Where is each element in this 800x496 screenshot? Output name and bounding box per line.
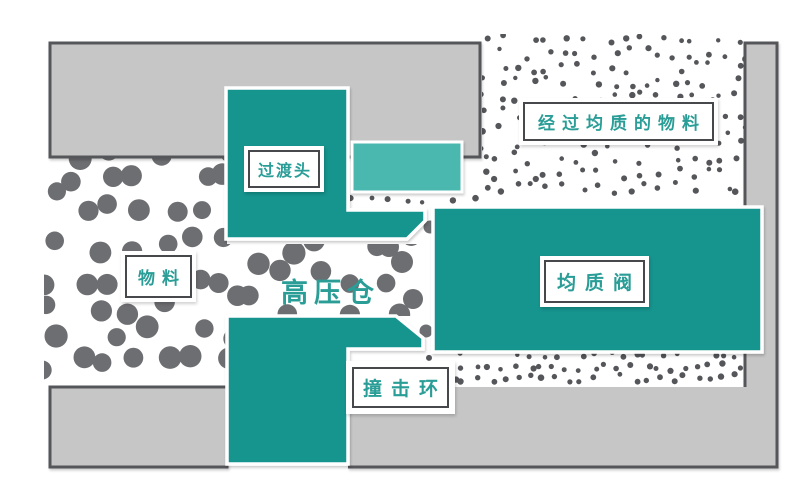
- lower-left-wall: [50, 387, 227, 467]
- particle-dot: [495, 123, 501, 129]
- particle-dot: [533, 37, 539, 43]
- particle-dot: [136, 315, 159, 338]
- particle-dot: [548, 49, 553, 54]
- particle-dot: [591, 71, 596, 76]
- particle-dot: [567, 379, 572, 384]
- particle-dot: [613, 159, 618, 164]
- particle-dot: [97, 274, 118, 295]
- particle-dot: [497, 47, 501, 51]
- particle-dot: [687, 39, 692, 44]
- particle-dot: [679, 69, 685, 75]
- particle-dot: [524, 56, 529, 61]
- diagram-canvas: [0, 0, 800, 496]
- particle-dot: [672, 378, 678, 384]
- particle-dot: [513, 363, 519, 369]
- particle-dot: [209, 273, 229, 293]
- particle-dot: [525, 161, 530, 166]
- particle-dot: [513, 169, 518, 174]
- particle-dot: [97, 194, 117, 214]
- particle-dot: [734, 155, 740, 161]
- particle-dot: [645, 45, 651, 51]
- particle-dot: [128, 199, 150, 221]
- particle-dot: [549, 364, 554, 369]
- particle-dot: [498, 367, 503, 372]
- particle-dot: [738, 63, 744, 69]
- homogenizer-diagram: 物料 过渡头 经过均质的物料 均质阀 撞击环 高压仓: [0, 0, 800, 496]
- particle-dot: [644, 378, 649, 383]
- particle-dot: [517, 375, 522, 380]
- particle-dot: [627, 45, 632, 50]
- particle-dot: [654, 366, 659, 371]
- particle-dot: [492, 156, 498, 162]
- particle-dot: [476, 365, 481, 370]
- particle-dot: [574, 160, 579, 165]
- particle-dot: [45, 324, 68, 347]
- particle-dot: [721, 353, 726, 358]
- particle-dot: [614, 84, 619, 89]
- particle-dot: [679, 38, 684, 43]
- particle-dot: [484, 154, 489, 159]
- particle-dot: [91, 300, 112, 321]
- homogenizing-valve-label-text: 均质阀: [544, 260, 645, 303]
- particle-dot: [481, 108, 487, 114]
- particle-dot: [706, 160, 712, 166]
- particle-dot: [403, 289, 423, 309]
- particle-dot: [645, 83, 650, 88]
- particle-dot: [705, 60, 710, 65]
- particle-dot: [679, 372, 685, 378]
- particle-dot: [692, 174, 698, 180]
- particle-dot: [515, 65, 521, 71]
- particle-dot: [247, 253, 269, 275]
- particle-dot: [692, 156, 698, 162]
- particle-dot: [121, 165, 142, 186]
- particle-dot: [655, 185, 661, 191]
- particle-dot: [576, 379, 581, 384]
- particle-dot: [612, 191, 617, 196]
- particle-dot: [596, 81, 602, 87]
- particle-dot: [528, 181, 533, 186]
- particle-dot: [580, 168, 585, 173]
- particle-dot: [716, 158, 722, 164]
- particle-dot: [385, 196, 391, 202]
- particle-dot: [623, 35, 629, 41]
- particle-dot: [655, 78, 659, 82]
- particle-dot: [74, 346, 96, 368]
- particle-dot: [618, 372, 623, 377]
- particle-dot: [728, 187, 733, 192]
- particle-dot: [627, 362, 633, 368]
- particle-dot: [581, 354, 587, 360]
- particle-dot: [500, 96, 506, 102]
- particle-dot: [450, 197, 456, 203]
- particle-dot: [370, 196, 375, 201]
- particle-dot: [590, 374, 596, 380]
- particle-dot: [572, 51, 577, 56]
- material-label-text: 物料: [125, 255, 192, 298]
- particle-dot: [615, 50, 621, 56]
- particle-dot: [554, 354, 560, 360]
- particle-dot: [732, 188, 739, 195]
- particle-dot: [637, 173, 643, 179]
- particle-dot: [563, 50, 569, 56]
- particle-dot: [647, 363, 653, 369]
- particle-dot: [90, 242, 112, 264]
- particle-dot: [77, 274, 99, 296]
- particle-dot: [687, 55, 692, 60]
- particle-dot: [540, 37, 546, 43]
- material-label: 物料: [121, 251, 196, 302]
- particle-dot: [515, 145, 520, 150]
- particle-dot: [736, 75, 742, 81]
- particle-dot: [706, 52, 712, 58]
- particle-dot: [543, 355, 548, 360]
- particle-dot: [595, 182, 601, 188]
- impact-ring-label: 撞击环: [346, 361, 455, 414]
- particle-dot: [591, 55, 596, 60]
- particle-dot: [732, 371, 738, 377]
- particle-dot: [503, 376, 509, 382]
- particle-dot: [726, 131, 731, 136]
- particle-dot: [485, 185, 491, 191]
- particle-dot: [574, 61, 580, 67]
- particle-dot: [501, 80, 507, 86]
- homogenizing-valve-label: 均质阀: [540, 256, 649, 307]
- particle-dot: [621, 354, 627, 360]
- particle-dot: [559, 156, 564, 161]
- impact-ring-label-text: 撞击环: [352, 367, 449, 408]
- particle-dot: [738, 114, 744, 120]
- particle-dot: [673, 180, 678, 185]
- particle-dot: [182, 227, 203, 248]
- particle-dot: [723, 54, 728, 59]
- particle-dot: [704, 362, 710, 368]
- particle-dot: [557, 171, 563, 177]
- particle-dot: [624, 70, 629, 75]
- particle-dot: [426, 355, 432, 361]
- particle-dot: [732, 355, 737, 360]
- particle-dot: [695, 364, 700, 369]
- particle-dot: [34, 275, 55, 296]
- particle-dot: [719, 360, 725, 366]
- particle-dot: [420, 200, 424, 204]
- particle-dot: [580, 36, 585, 41]
- particle-dot: [693, 188, 699, 194]
- particle-dot: [697, 376, 702, 381]
- particle-dot: [511, 98, 517, 104]
- particle-dot: [716, 38, 720, 42]
- particle-dot: [512, 150, 518, 156]
- particle-dot: [689, 93, 694, 98]
- particle-dot: [699, 83, 705, 89]
- particle-dot: [528, 373, 533, 378]
- particle-dot: [108, 328, 126, 346]
- particle-dot: [592, 150, 598, 156]
- particle-dot: [609, 40, 615, 46]
- particle-dot: [123, 348, 143, 368]
- particle-dot: [560, 81, 566, 87]
- particle-dot: [613, 366, 619, 372]
- particle-dot: [676, 158, 681, 163]
- homogenized-material-label: 经过均质的物料: [519, 98, 718, 145]
- particle-dot: [673, 81, 679, 87]
- particle-dot: [531, 365, 537, 371]
- particle-dot: [564, 35, 570, 41]
- particle-dot: [484, 364, 490, 370]
- particle-dot: [594, 367, 599, 372]
- particle-dot: [559, 62, 564, 67]
- particle-dot: [458, 365, 463, 370]
- particle-dot: [527, 354, 532, 359]
- particle-dot: [723, 114, 728, 119]
- particle-dot: [193, 201, 211, 219]
- particle-dot: [621, 175, 627, 181]
- particle-dot: [559, 181, 564, 186]
- particle-dot: [653, 92, 659, 98]
- particle-dot: [583, 188, 588, 193]
- particle-dot: [552, 374, 557, 379]
- particle-dot: [738, 365, 743, 370]
- particle-dot: [593, 168, 598, 173]
- particle-dot: [513, 76, 517, 80]
- particle-dot: [707, 167, 712, 172]
- particle-dot: [683, 366, 688, 371]
- particle-dot: [117, 304, 138, 325]
- particle-dot: [538, 374, 545, 381]
- particle-dot: [540, 69, 546, 75]
- particle-dot: [655, 53, 660, 58]
- particle-dot: [576, 368, 581, 373]
- transition-head-label-text: 过渡头: [248, 150, 320, 188]
- particle-dot: [45, 232, 64, 251]
- particle-dot: [498, 188, 504, 194]
- particle-dot: [731, 90, 737, 96]
- particle-dot: [492, 379, 498, 385]
- particle-dot: [685, 80, 690, 85]
- particle-dot: [491, 176, 497, 182]
- particle-dot: [667, 368, 673, 374]
- particle-dot: [635, 379, 641, 385]
- particle-dot: [694, 60, 699, 65]
- particle-dot: [738, 40, 743, 45]
- particle-dot: [637, 90, 642, 95]
- particle-dot: [457, 378, 463, 384]
- particle-dot: [677, 166, 683, 172]
- particle-dot: [609, 65, 615, 71]
- particle-dot: [195, 319, 213, 337]
- particle-dot: [168, 202, 188, 222]
- particle-dot: [540, 172, 546, 178]
- particle-dot: [717, 167, 722, 172]
- particle-dot: [406, 199, 411, 204]
- particle-dot: [636, 161, 641, 166]
- particle-dot: [562, 367, 567, 372]
- particle-dot: [500, 32, 506, 38]
- particle-dot: [532, 78, 538, 84]
- particle-dot: [708, 376, 713, 381]
- particle-dot: [613, 92, 618, 97]
- particle-dot: [544, 75, 549, 80]
- particle-dot: [239, 286, 259, 306]
- particle-dot: [738, 138, 744, 144]
- particle-dot: [179, 345, 201, 367]
- particle-dot: [630, 84, 636, 90]
- particle-dot: [531, 70, 537, 76]
- particle-dot: [33, 361, 52, 380]
- particle-dot: [661, 35, 666, 40]
- particle-dot: [641, 181, 646, 186]
- particle-dot: [61, 172, 81, 192]
- particle-dot: [661, 353, 666, 358]
- particle-dot: [483, 169, 489, 175]
- particle-dot: [503, 66, 508, 71]
- particle-dot: [536, 364, 541, 369]
- particle-dot: [637, 34, 643, 40]
- light-teal-block: [352, 142, 462, 192]
- particle-dot: [674, 146, 679, 151]
- homogenized-material-label-text: 经过均质的物料: [523, 102, 714, 141]
- particle-dot: [485, 36, 491, 42]
- particle-dot: [669, 55, 674, 60]
- particle-dot: [516, 181, 522, 187]
- particle-dot: [103, 167, 123, 187]
- particle-dot: [37, 296, 55, 314]
- particle-dot: [656, 172, 662, 178]
- particle-dot: [657, 374, 663, 380]
- particle-dot: [475, 375, 480, 380]
- particle-dot: [629, 188, 635, 194]
- particle-dot: [542, 183, 548, 189]
- particle-dot: [159, 346, 182, 369]
- particle-dot: [78, 201, 98, 221]
- particle-dot: [500, 106, 505, 111]
- particle-dot: [718, 373, 724, 379]
- transition-head-label: 过渡头: [244, 146, 324, 192]
- high-pressure-chamber-label: 高压仓: [281, 271, 380, 310]
- particle-dot: [472, 195, 479, 202]
- particle-dot: [93, 353, 112, 372]
- particle-dot: [282, 241, 305, 264]
- particle-dot: [533, 176, 539, 182]
- particle-dot: [601, 362, 606, 367]
